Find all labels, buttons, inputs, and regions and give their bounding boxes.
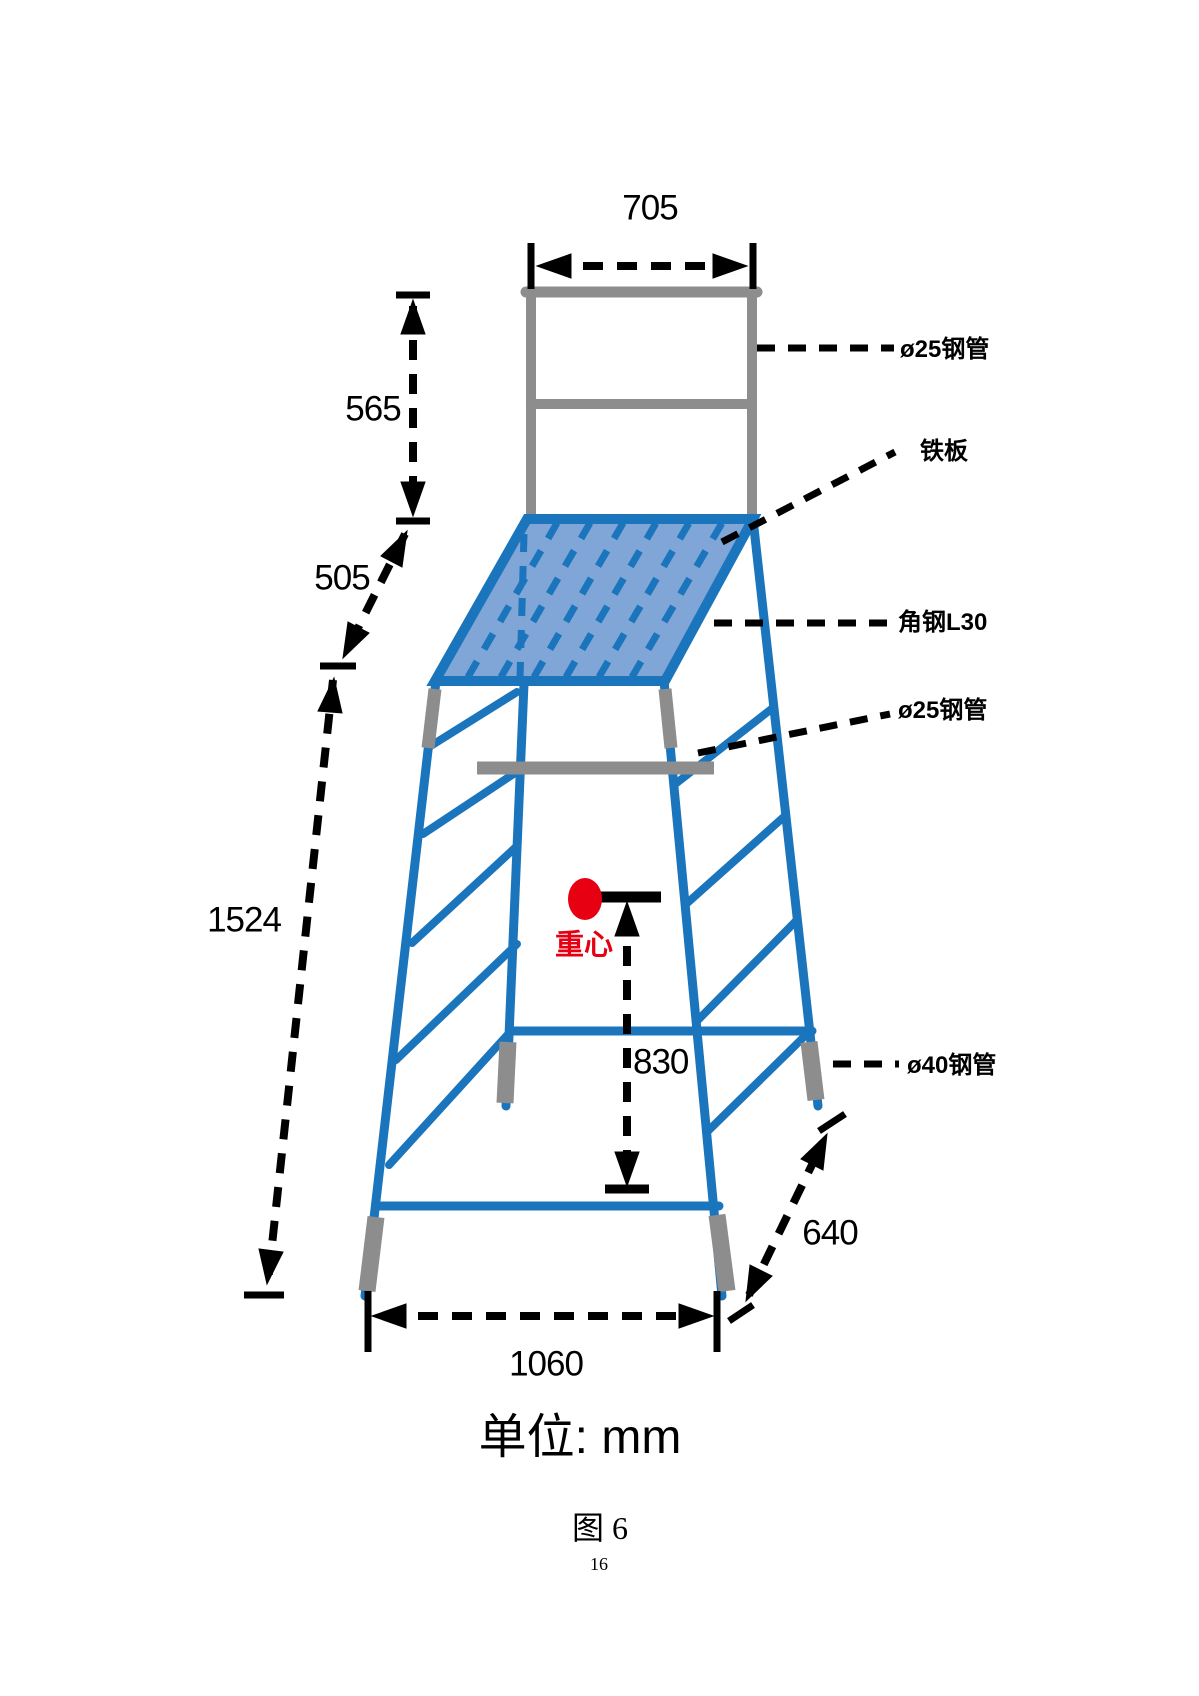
page-number: 16 xyxy=(590,1555,608,1573)
dim-text-base-depth: 640 xyxy=(802,1216,857,1251)
label-pipe25-top: ø25钢管 xyxy=(900,338,989,362)
center-of-gravity-dot xyxy=(568,878,602,920)
figure-caption: 图 6 xyxy=(572,1512,628,1544)
front-left-foot-pad xyxy=(367,1217,376,1291)
dim-text-total-height: 1524 xyxy=(207,903,281,938)
label-iron-plate: 铁板 xyxy=(920,440,968,464)
unit-label: 单位: mm xyxy=(479,1414,682,1462)
right-leg-sleeve xyxy=(665,689,671,748)
dim-text-seat-offset: 505 xyxy=(314,561,369,596)
backrest-frame xyxy=(526,292,757,519)
dim-text-top-width: 705 xyxy=(622,191,677,226)
dim-line-505 xyxy=(320,531,407,666)
left-leg-sleeve xyxy=(428,689,435,748)
plate-surface xyxy=(435,519,753,681)
dim-line-705 xyxy=(531,243,753,289)
label-pipe25-mid: ø25钢管 xyxy=(898,699,987,723)
front-right-foot-pad xyxy=(717,1215,727,1291)
figure-page: 705 565 505 1524 830 640 1060 ø25钢管 铁板 角… xyxy=(0,0,1199,1696)
label-angle-steel-l30: 角钢L30 xyxy=(898,611,987,635)
label-pipe40-foot: ø40钢管 xyxy=(907,1054,996,1078)
platform-plate xyxy=(435,519,753,681)
dim-text-base-width: 1060 xyxy=(509,1347,583,1382)
rear-left-foot-pad xyxy=(505,1042,508,1103)
gray-fittings xyxy=(367,689,816,1291)
dim-line-1524 xyxy=(244,678,342,1295)
dim-line-565 xyxy=(396,295,430,521)
dim-text-backrest-height: 565 xyxy=(345,392,400,427)
rear-right-foot-pad xyxy=(809,1042,816,1100)
dim-line-1060 xyxy=(368,1291,717,1352)
dim-text-cg-height: 830 xyxy=(633,1045,688,1080)
center-of-gravity-label: 重心 xyxy=(555,932,613,961)
